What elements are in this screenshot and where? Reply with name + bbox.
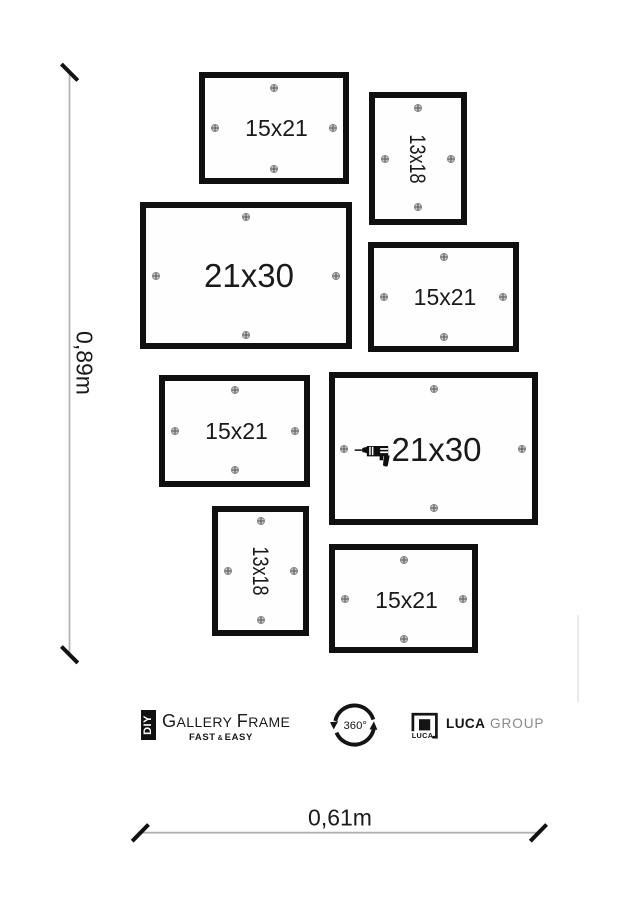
svg-text:LUCA: LUCA	[412, 731, 434, 740]
